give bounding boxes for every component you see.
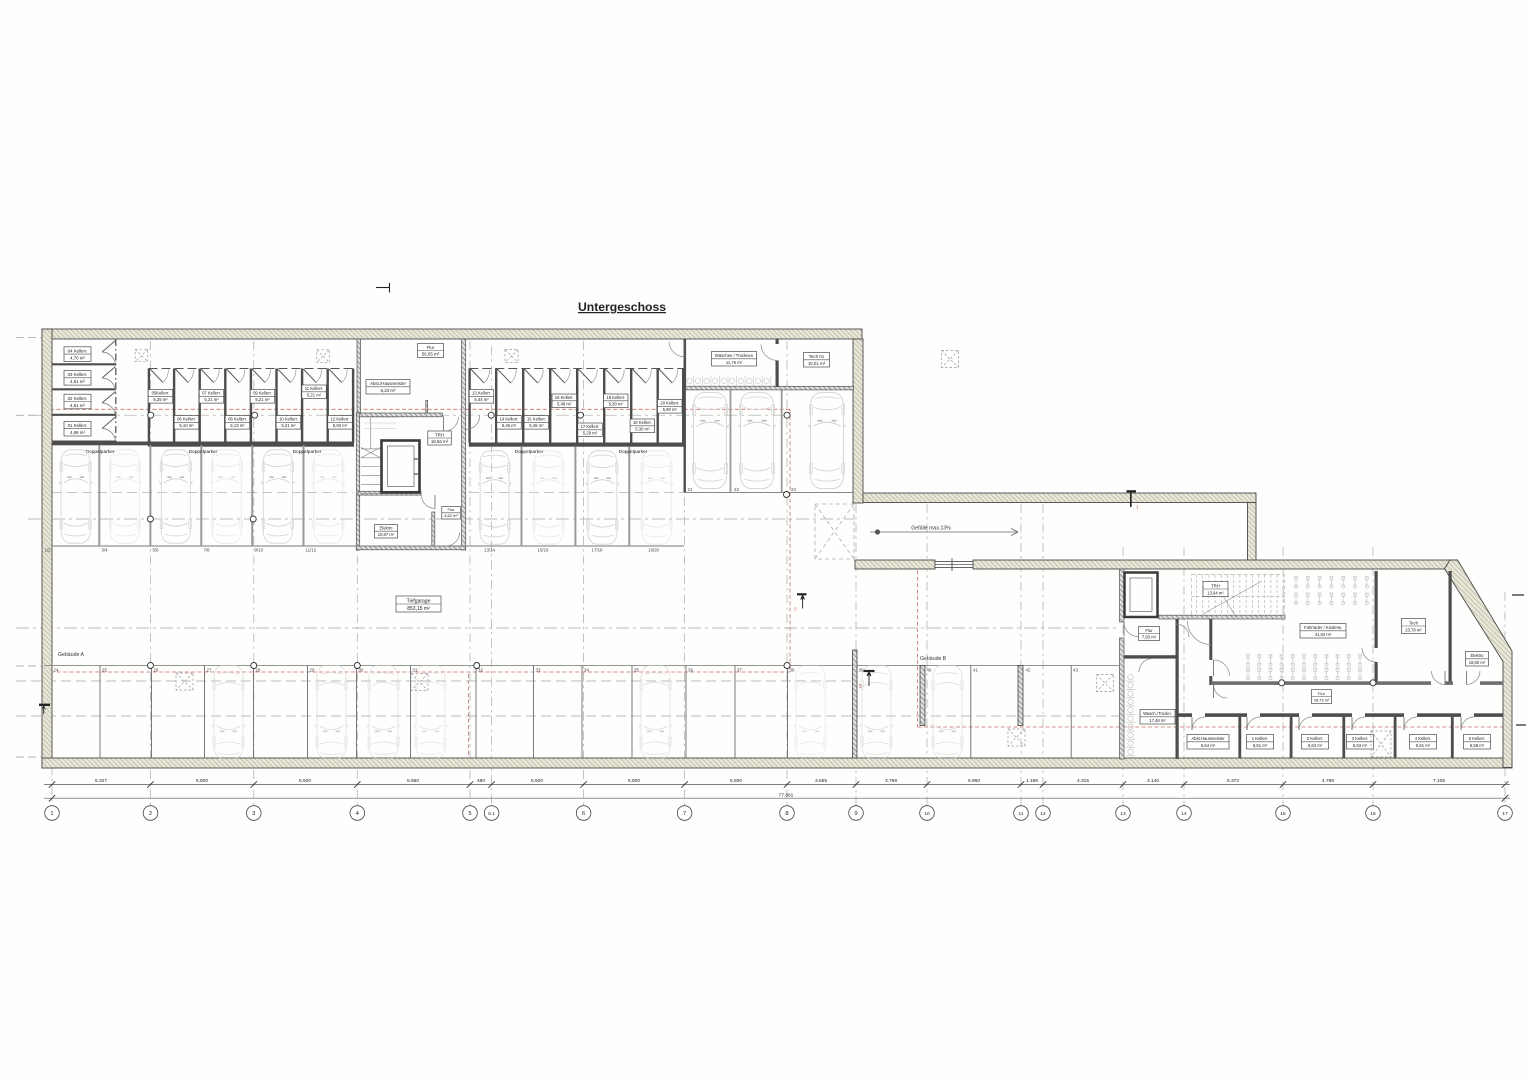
svg-text:1 Kellerr.: 1 Kellerr. xyxy=(1252,736,1269,741)
svg-text:41,82 m²: 41,82 m² xyxy=(1315,632,1332,637)
svg-text:10 Kellerr.: 10 Kellerr. xyxy=(279,417,298,422)
svg-text:9/10: 9/10 xyxy=(255,548,264,553)
svg-text:9: 9 xyxy=(854,811,857,817)
svg-text:4.798: 4.798 xyxy=(1322,778,1334,784)
svg-text:Tech 01: Tech 01 xyxy=(809,354,825,359)
svg-text:5.500: 5.500 xyxy=(531,778,543,784)
svg-text:Doppelparker: Doppelparker xyxy=(189,449,218,455)
svg-text:8: 8 xyxy=(785,811,788,817)
svg-text:Tech: Tech xyxy=(1409,620,1419,625)
svg-text:5.500: 5.500 xyxy=(196,778,208,784)
svg-text:2 Kellerr.: 2 Kellerr. xyxy=(1307,736,1324,741)
svg-text:23,78 m²: 23,78 m² xyxy=(1405,628,1422,633)
svg-text:15/16: 15/16 xyxy=(538,548,550,553)
svg-text:Doppelparker: Doppelparker xyxy=(86,449,115,455)
svg-text:5.960: 5.960 xyxy=(968,778,980,784)
svg-text:22: 22 xyxy=(734,487,739,492)
svg-text:5.960: 5.960 xyxy=(407,778,419,784)
svg-text:5.500: 5.500 xyxy=(628,778,640,784)
svg-text:13.Kellerr.: 13.Kellerr. xyxy=(472,391,491,396)
svg-text:15: 15 xyxy=(1280,811,1286,817)
svg-text:04 Kellerr.: 04 Kellerr. xyxy=(68,349,88,354)
svg-text:5,29 m²: 5,29 m² xyxy=(583,431,598,436)
svg-text:6,61 m²: 6,61 m² xyxy=(1416,743,1431,748)
svg-text:5,48 m²: 5,48 m² xyxy=(557,402,572,407)
svg-text:18,56 m²: 18,56 m² xyxy=(431,439,449,444)
svg-text:12 Kellerr.: 12 Kellerr. xyxy=(331,417,350,422)
svg-text:Doppelparker: Doppelparker xyxy=(619,449,648,455)
svg-text:5.372: 5.372 xyxy=(1227,778,1239,784)
svg-text:13,94 m²: 13,94 m² xyxy=(1207,591,1224,596)
svg-text:5: 5 xyxy=(859,684,862,690)
svg-text:02 Kellerr.: 02 Kellerr. xyxy=(68,396,88,401)
svg-text:3: 3 xyxy=(252,811,255,817)
svg-text:08 Kellerr.: 08 Kellerr. xyxy=(228,417,247,422)
svg-text:10,87 m²: 10,87 m² xyxy=(378,532,395,537)
svg-text:Elektro: Elektro xyxy=(379,526,393,531)
svg-text:11/12: 11/12 xyxy=(306,548,317,553)
svg-text:5,30 m²: 5,30 m² xyxy=(635,427,650,432)
svg-text:19/20: 19/20 xyxy=(648,548,660,553)
svg-text:8,23 m²: 8,23 m² xyxy=(381,388,396,393)
svg-text:7/8: 7/8 xyxy=(204,548,211,553)
svg-text:6,64 m²: 6,64 m² xyxy=(1201,743,1216,748)
svg-text:38: 38 xyxy=(790,668,795,673)
svg-text:6,63 m²: 6,63 m² xyxy=(1308,743,1323,748)
svg-text:Gebäude B: Gebäude B xyxy=(920,656,947,662)
svg-text:Flur: Flur xyxy=(427,345,435,350)
svg-text:5: 5 xyxy=(468,811,471,817)
svg-text:5,21 m²: 5,21 m² xyxy=(307,393,322,398)
svg-text:5,21 m²: 5,21 m² xyxy=(255,397,270,402)
svg-text:16: 16 xyxy=(1370,811,1376,817)
svg-text:5.1: 5.1 xyxy=(488,811,495,817)
svg-text:42: 42 xyxy=(1026,668,1031,673)
svg-text:07 Kellerr.: 07 Kellerr. xyxy=(202,391,221,396)
svg-text:40: 40 xyxy=(927,668,932,673)
svg-text:28,73 m²: 28,73 m² xyxy=(1314,698,1330,703)
svg-text:Fahrräder / Kinderw.: Fahrräder / Kinderw. xyxy=(1304,625,1342,630)
svg-text:26: 26 xyxy=(154,668,159,673)
svg-text:10: 10 xyxy=(924,811,930,817)
svg-text:480: 480 xyxy=(477,778,485,784)
svg-text:14 Kellerr.: 14 Kellerr. xyxy=(500,417,519,422)
svg-text:4.315: 4.315 xyxy=(1077,778,1089,784)
svg-text:35: 35 xyxy=(634,668,639,673)
svg-text:4,61 m²: 4,61 m² xyxy=(70,403,85,408)
svg-text:5.500: 5.500 xyxy=(730,778,742,784)
svg-text:TRH: TRH xyxy=(435,432,444,437)
svg-text:Flur: Flur xyxy=(1145,628,1153,633)
svg-text:4,69 m²: 4,69 m² xyxy=(70,430,85,435)
svg-text:5,90 m²: 5,90 m² xyxy=(663,407,678,412)
svg-text:5,45 m²: 5,45 m² xyxy=(529,423,544,428)
svg-text:10,01 m²: 10,01 m² xyxy=(808,361,826,366)
svg-text:18,50 m²: 18,50 m² xyxy=(1469,660,1486,665)
svg-text:23: 23 xyxy=(791,487,796,492)
svg-text:6,58 m²: 6,58 m² xyxy=(1470,743,1485,748)
svg-text:17: 17 xyxy=(1502,811,1508,817)
svg-text:5,13 m²: 5,13 m² xyxy=(230,423,245,428)
svg-text:Elektro: Elektro xyxy=(1470,653,1484,658)
svg-text:05Kellerr.: 05Kellerr. xyxy=(152,391,170,396)
svg-text:7,83 m²: 7,83 m² xyxy=(1142,635,1157,640)
svg-text:32: 32 xyxy=(478,668,483,673)
svg-text:5,93 m²: 5,93 m² xyxy=(333,423,348,428)
svg-text:5 Kellerr.: 5 Kellerr. xyxy=(1469,736,1486,741)
svg-text:7: 7 xyxy=(683,811,686,817)
svg-text:853,15 m²: 853,15 m² xyxy=(407,606,430,612)
svg-text:Flur: Flur xyxy=(1318,691,1326,696)
svg-text:7.106: 7.106 xyxy=(1433,778,1445,784)
svg-text:34: 34 xyxy=(584,668,589,673)
svg-text:Abst./Hausmeister: Abst./Hausmeister xyxy=(370,381,406,386)
svg-text:36: 36 xyxy=(688,668,693,673)
svg-text:5,30 m²: 5,30 m² xyxy=(609,402,624,407)
svg-text:6,61 m²: 6,61 m² xyxy=(1253,743,1268,748)
svg-text:33: 33 xyxy=(536,668,541,673)
svg-text:24: 24 xyxy=(54,668,59,673)
svg-text:4,70 m²: 4,70 m² xyxy=(70,355,85,360)
svg-text:3/4: 3/4 xyxy=(102,548,109,553)
svg-text:09 Kellerr.: 09 Kellerr. xyxy=(253,391,272,396)
svg-text:Untergeschoss: Untergeschoss xyxy=(578,300,666,314)
svg-text:06 Kellerr.: 06 Kellerr. xyxy=(177,417,196,422)
svg-text:37: 37 xyxy=(737,668,742,673)
svg-text:03 Kellerr.: 03 Kellerr. xyxy=(68,372,88,377)
svg-text:18 Kellerr.: 18 Kellerr. xyxy=(606,395,625,400)
svg-text:3.769: 3.769 xyxy=(885,778,897,784)
svg-text:14: 14 xyxy=(1181,811,1187,817)
svg-text:77.661: 77.661 xyxy=(779,792,794,798)
svg-text:19 Kellerr.: 19 Kellerr. xyxy=(633,420,652,425)
svg-text:5.500: 5.500 xyxy=(299,778,311,784)
svg-text:56,55 m²: 56,55 m² xyxy=(422,352,440,357)
svg-text:5,25 m²: 5,25 m² xyxy=(153,397,168,402)
svg-text:5,45 m²: 5,45 m² xyxy=(502,423,517,428)
svg-text:1: 1 xyxy=(50,811,53,817)
svg-text:4 Kellerr.: 4 Kellerr. xyxy=(1415,736,1432,741)
svg-text:15 Kellerr.: 15 Kellerr. xyxy=(527,417,546,422)
svg-text:Tiefgarage: Tiefgarage xyxy=(407,598,431,604)
svg-text:5,21 m²: 5,21 m² xyxy=(281,423,296,428)
svg-text:29: 29 xyxy=(310,668,315,673)
svg-text:21: 21 xyxy=(688,487,693,492)
svg-text:3.140: 3.140 xyxy=(1147,778,1159,784)
svg-text:6: 6 xyxy=(582,811,585,817)
svg-text:27: 27 xyxy=(207,668,212,673)
svg-text:17 Kellerr.: 17 Kellerr. xyxy=(581,424,600,429)
svg-text:16 Kellerr.: 16 Kellerr. xyxy=(555,395,574,400)
svg-text:TRH: TRH xyxy=(1211,583,1220,588)
svg-text:11: 11 xyxy=(1019,811,1024,817)
svg-text:25: 25 xyxy=(102,668,107,673)
svg-text:Wäschen / Trocknen: Wäschen / Trocknen xyxy=(715,353,754,358)
svg-text:5/6: 5/6 xyxy=(153,548,160,553)
svg-text:1.186: 1.186 xyxy=(1026,778,1038,784)
svg-text:11 Kellerr.: 11 Kellerr. xyxy=(305,386,324,391)
svg-text:4,61 m²: 4,61 m² xyxy=(70,379,85,384)
svg-text:5,44 m²: 5,44 m² xyxy=(474,397,489,402)
svg-text:6,63 m²: 6,63 m² xyxy=(1353,743,1368,748)
svg-text:12: 12 xyxy=(1040,811,1046,817)
svg-text:Gebäude A: Gebäude A xyxy=(58,652,84,658)
svg-text:17/18: 17/18 xyxy=(592,548,604,553)
svg-text:43: 43 xyxy=(1073,668,1078,673)
svg-text:13/14: 13/14 xyxy=(484,548,496,553)
svg-text:1/2: 1/2 xyxy=(45,548,52,553)
svg-text:11,76 m²: 11,76 m² xyxy=(726,360,743,365)
svg-text:28: 28 xyxy=(256,668,261,673)
svg-text:5,21 m²: 5,21 m² xyxy=(204,397,219,402)
svg-text:17,48 m²: 17,48 m² xyxy=(1149,718,1166,723)
svg-text:13: 13 xyxy=(1120,811,1126,817)
svg-text:2: 2 xyxy=(149,811,152,817)
svg-text:5,10 m²: 5,10 m² xyxy=(179,423,194,428)
svg-text:01 Kellerr.: 01 Kellerr. xyxy=(68,423,88,428)
svg-text:Wasch./Trockn.: Wasch./Trockn. xyxy=(1143,711,1172,716)
svg-text:20 Kellerr.: 20 Kellerr. xyxy=(660,401,679,406)
svg-text:41: 41 xyxy=(973,668,978,673)
svg-text:Gefälle max.13%: Gefälle max.13% xyxy=(911,526,951,532)
svg-text:Abst.Hausmeister: Abst.Hausmeister xyxy=(1191,736,1225,741)
svg-text:5.327: 5.327 xyxy=(95,778,107,784)
svg-text:3.655: 3.655 xyxy=(815,778,827,784)
svg-text:4,62 m²: 4,62 m² xyxy=(444,513,458,518)
svg-text:Flur: Flur xyxy=(448,507,456,512)
svg-text:3 Kellerr.: 3 Kellerr. xyxy=(1352,736,1369,741)
